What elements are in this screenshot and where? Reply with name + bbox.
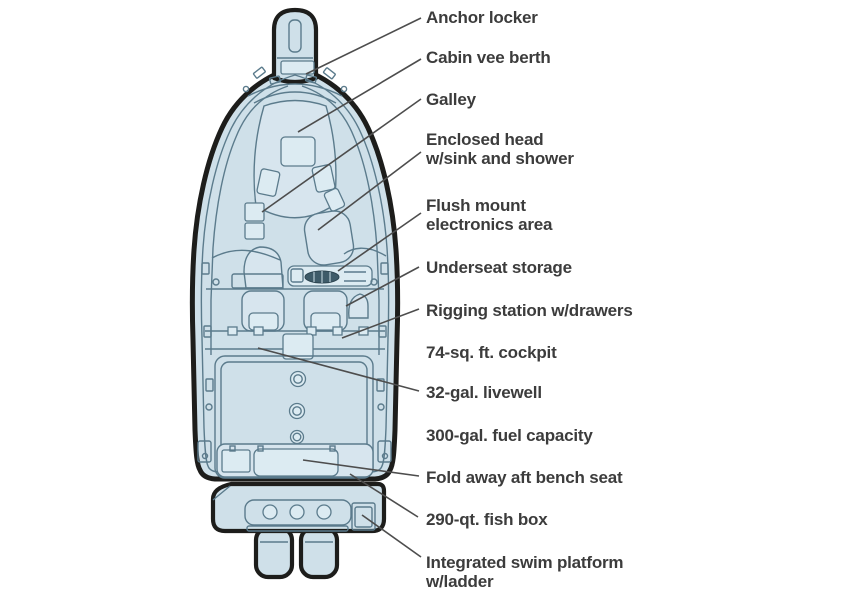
label-cockpit: 74-sq. ft. cockpit: [426, 343, 557, 362]
starboard-engine: [301, 528, 337, 577]
label-underseat-storage: Underseat storage: [426, 258, 572, 277]
leader-swim-platform: [362, 515, 421, 557]
enclosed-head-console: [302, 209, 356, 268]
label-swim-platform: Integrated swim platform w/ladder: [426, 553, 623, 591]
leader-anchor-locker: [306, 18, 421, 74]
electronics-console: [288, 266, 372, 286]
cabin-table: [281, 137, 315, 166]
label-flush-mount-electronics: Flush mount electronics area: [426, 196, 552, 234]
galley-console: [245, 203, 264, 239]
label-anchor-locker: Anchor locker: [426, 8, 538, 27]
boat-deck-plan-figure: Anchor locker Cabin vee berth Galley Enc…: [0, 0, 868, 600]
label-enclosed-head: Enclosed head w/sink and shower: [426, 130, 574, 168]
label-galley: Galley: [426, 90, 476, 109]
aft-bench: [217, 444, 373, 477]
label-livewell: 32-gal. livewell: [426, 383, 542, 402]
label-cabin-vee-berth: Cabin vee berth: [426, 48, 551, 67]
label-fish-box: 290-qt. fish box: [426, 510, 548, 529]
port-engine: [256, 528, 292, 577]
label-aft-bench-seat: Fold away aft bench seat: [426, 468, 622, 487]
label-rigging-station: Rigging station w/drawers: [426, 301, 633, 320]
label-fuel-capacity: 300-gal. fuel capacity: [426, 426, 593, 445]
